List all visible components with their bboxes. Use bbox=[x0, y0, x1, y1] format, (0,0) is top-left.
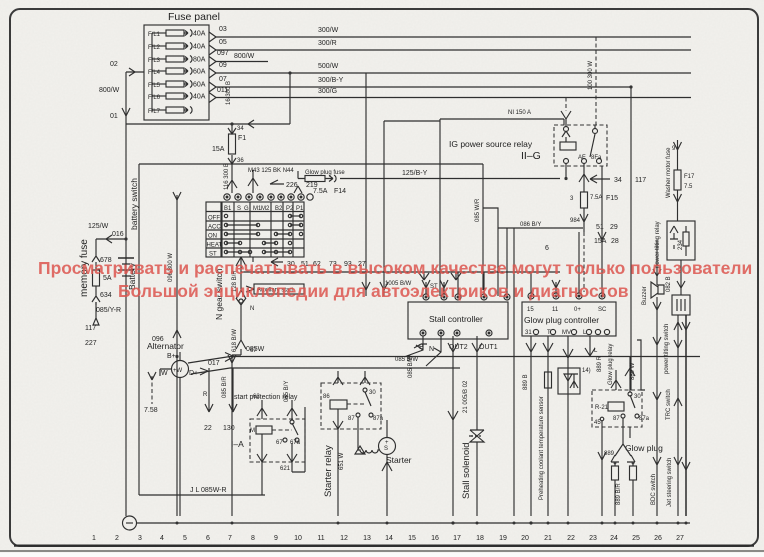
svg-text:800/W: 800/W bbox=[234, 53, 255, 60]
svg-text:889 B: 889 B bbox=[523, 374, 529, 390]
svg-text:15A: 15A bbox=[594, 238, 607, 245]
svg-text:TRC switch: TRC switch bbox=[666, 389, 672, 420]
svg-text:51: 51 bbox=[596, 224, 604, 231]
svg-text:15A: 15A bbox=[212, 146, 225, 153]
svg-text:R: R bbox=[203, 392, 208, 398]
svg-text:AF: AF bbox=[578, 155, 586, 161]
svg-text:29: 29 bbox=[610, 224, 618, 231]
svg-text:117: 117 bbox=[85, 325, 96, 332]
svg-text:5: 5 bbox=[183, 535, 187, 542]
svg-text:22: 22 bbox=[567, 535, 575, 542]
svg-text:battery switch: battery switch bbox=[129, 178, 139, 230]
svg-text:125/B-Y: 125/B-Y bbox=[402, 170, 428, 177]
svg-text:02: 02 bbox=[110, 61, 118, 68]
svg-text:BDC switch: BDC switch bbox=[651, 474, 657, 505]
svg-text:M: M bbox=[250, 428, 255, 434]
svg-text:45: 45 bbox=[594, 420, 601, 426]
svg-text:651 W: 651 W bbox=[339, 452, 345, 470]
svg-text:30: 30 bbox=[369, 390, 376, 396]
svg-text:13: 13 bbox=[363, 535, 371, 542]
svg-text:085 W/R: 085 W/R bbox=[475, 198, 481, 222]
svg-text:25: 25 bbox=[632, 535, 640, 542]
svg-text:618 B/W: 618 B/W bbox=[232, 329, 238, 352]
svg-text:87: 87 bbox=[348, 416, 355, 422]
svg-text:67: 67 bbox=[276, 440, 283, 446]
svg-text:226: 226 bbox=[286, 182, 298, 189]
svg-text:11: 11 bbox=[317, 535, 324, 542]
svg-text:F17: F17 bbox=[684, 174, 695, 180]
svg-text:Stall solenoid: Stall solenoid bbox=[461, 442, 472, 499]
svg-text:889 B/R: 889 B/R bbox=[616, 483, 622, 505]
svg-text:20: 20 bbox=[521, 535, 529, 542]
svg-text:SC: SC bbox=[598, 307, 607, 313]
svg-text:116 300 B: 116 300 B bbox=[224, 163, 230, 190]
svg-text:24: 24 bbox=[610, 535, 618, 542]
svg-text:17: 17 bbox=[453, 535, 461, 542]
svg-text:34: 34 bbox=[237, 126, 244, 132]
svg-text:87: 87 bbox=[613, 416, 620, 422]
svg-text:634: 634 bbox=[100, 292, 112, 299]
svg-text:I–A: I–A bbox=[231, 439, 244, 449]
svg-text:Jet steering switch: Jet steering switch bbox=[667, 458, 673, 507]
svg-text:Starter: Starter bbox=[386, 455, 412, 465]
svg-text:ST: ST bbox=[209, 252, 217, 258]
svg-text:Alternator: Alternator bbox=[147, 341, 184, 351]
svg-text:19: 19 bbox=[499, 535, 507, 542]
svg-text:300/G: 300/G bbox=[318, 88, 337, 95]
svg-text:15: 15 bbox=[408, 535, 416, 542]
svg-text:4: 4 bbox=[160, 535, 164, 542]
svg-text:S: S bbox=[384, 446, 388, 452]
svg-text:085 B/R: 085 B/R bbox=[222, 376, 228, 398]
svg-text:130: 130 bbox=[223, 425, 235, 432]
svg-text:984: 984 bbox=[570, 218, 581, 224]
svg-text:8Fa: 8Fa bbox=[591, 155, 602, 161]
svg-text:097: 097 bbox=[217, 50, 229, 57]
svg-text:03: 03 bbox=[219, 26, 227, 33]
svg-text:Glow plug controller: Glow plug controller bbox=[524, 315, 599, 325]
svg-text:60A: 60A bbox=[193, 82, 206, 89]
svg-text:40A: 40A bbox=[193, 44, 206, 51]
svg-text:Preheating coolant temperature: Preheating coolant temperature sensor bbox=[539, 396, 545, 500]
svg-text:Glow plug relay: Glow plug relay bbox=[608, 344, 614, 385]
svg-text:Большой энциклопедии для автоэ: Большой энциклопедии для автоэлектриков … bbox=[118, 281, 629, 301]
svg-text:500/W: 500/W bbox=[318, 63, 339, 70]
svg-text:OUT1: OUT1 bbox=[479, 344, 498, 351]
svg-text:7.58: 7.58 bbox=[144, 407, 158, 414]
svg-text:M43 125 BK N44: M43 125 BK N44 bbox=[248, 168, 294, 174]
svg-text:21 005/B 02: 21 005/B 02 bbox=[463, 380, 469, 413]
svg-text:34: 34 bbox=[614, 177, 622, 184]
svg-text:Starter relay: Starter relay bbox=[323, 445, 334, 497]
svg-text:889 W: 889 W bbox=[630, 362, 636, 380]
svg-text:87a: 87a bbox=[373, 416, 384, 422]
svg-text:016: 016 bbox=[112, 231, 124, 238]
svg-text:0+: 0+ bbox=[574, 307, 581, 313]
svg-text:R-21: R-21 bbox=[595, 405, 609, 411]
svg-text:31: 31 bbox=[525, 330, 532, 336]
svg-text:26: 26 bbox=[654, 535, 662, 542]
svg-text:234: 234 bbox=[678, 239, 684, 250]
svg-text:86: 86 bbox=[323, 394, 330, 400]
svg-text:227: 227 bbox=[85, 340, 97, 347]
svg-text:J L 085W-R: J L 085W-R bbox=[190, 487, 227, 494]
svg-text:87a: 87a bbox=[639, 416, 650, 422]
svg-text:8: 8 bbox=[251, 535, 255, 542]
svg-text:+: + bbox=[385, 440, 389, 446]
svg-text:1: 1 bbox=[92, 535, 96, 542]
svg-text:MV: MV bbox=[562, 330, 571, 336]
svg-text:10: 10 bbox=[294, 535, 302, 542]
svg-text:+W: +W bbox=[173, 368, 183, 374]
svg-text:40A: 40A bbox=[193, 94, 206, 101]
svg-text:21: 21 bbox=[544, 535, 552, 542]
svg-text:300/R: 300/R bbox=[318, 40, 337, 47]
svg-text:Stall controller: Stall controller bbox=[429, 314, 483, 324]
svg-text:B+: B+ bbox=[167, 353, 176, 360]
svg-text:N: N bbox=[250, 306, 254, 312]
svg-text:800/W: 800/W bbox=[99, 87, 120, 94]
svg-text:3: 3 bbox=[138, 535, 142, 542]
svg-text:12: 12 bbox=[340, 535, 348, 542]
svg-text:01: 01 bbox=[110, 113, 118, 120]
svg-text:40A: 40A bbox=[193, 31, 206, 38]
svg-text:6: 6 bbox=[545, 245, 549, 252]
svg-text:14: 14 bbox=[385, 535, 393, 542]
svg-text:017: 017 bbox=[208, 360, 220, 367]
svg-text:7.5A: 7.5A bbox=[313, 188, 328, 195]
svg-text:300/W: 300/W bbox=[318, 27, 339, 34]
svg-text:621: 621 bbox=[280, 466, 291, 472]
svg-text:Washer motor fuse: Washer motor fuse bbox=[666, 147, 672, 198]
svg-text:W: W bbox=[161, 370, 168, 377]
svg-text:F14: F14 bbox=[334, 188, 346, 195]
svg-text:16: 16 bbox=[431, 535, 439, 542]
svg-text:7.5: 7.5 bbox=[684, 184, 693, 190]
svg-text:7: 7 bbox=[228, 535, 232, 542]
svg-text:125/W: 125/W bbox=[88, 223, 109, 230]
svg-text:100 300 W: 100 300 W bbox=[588, 61, 594, 90]
svg-text:2: 2 bbox=[115, 535, 119, 542]
svg-text:11: 11 bbox=[552, 307, 559, 313]
svg-text:16 300 B: 16 300 B bbox=[226, 81, 232, 105]
svg-text:7.5A: 7.5A bbox=[590, 195, 602, 201]
svg-text:30: 30 bbox=[634, 394, 641, 400]
svg-text:F15: F15 bbox=[606, 195, 618, 202]
svg-text:67: 67 bbox=[250, 348, 257, 354]
svg-text:F1: F1 bbox=[238, 135, 246, 142]
svg-text:05: 05 bbox=[219, 39, 227, 46]
svg-text:36: 36 bbox=[237, 158, 244, 164]
svg-text:power tilting switch: power tilting switch bbox=[664, 324, 670, 374]
svg-text:889: 889 bbox=[604, 451, 615, 457]
svg-text:NI 150 A: NI 150 A bbox=[508, 110, 531, 116]
svg-text:28: 28 bbox=[611, 238, 619, 245]
svg-text:117: 117 bbox=[635, 177, 646, 184]
svg-text:300/B-Y: 300/B-Y bbox=[318, 77, 344, 84]
svg-text:6: 6 bbox=[206, 535, 210, 542]
svg-text:Просматривать и распечатывать: Просматривать и распечатывать в высоком … bbox=[38, 258, 752, 278]
svg-text:085/Y-R: 085/Y-R bbox=[96, 307, 121, 314]
svg-text:085 B/W: 085 B/W bbox=[395, 357, 418, 363]
svg-text:082 B: 082 B bbox=[666, 276, 672, 292]
svg-text:62: 62 bbox=[253, 394, 260, 400]
svg-text:22: 22 bbox=[204, 425, 212, 432]
svg-text:23: 23 bbox=[589, 535, 597, 542]
svg-text:889 R: 889 R bbox=[597, 355, 603, 372]
svg-text:14): 14) bbox=[582, 368, 591, 374]
svg-text:Buzzer: Buzzer bbox=[642, 286, 648, 305]
svg-text:60A: 60A bbox=[193, 69, 206, 76]
svg-text:09: 09 bbox=[219, 62, 227, 69]
svg-text:Fuse panel: Fuse panel bbox=[168, 11, 220, 23]
svg-text:II–G: II–G bbox=[521, 150, 541, 162]
svg-text:N: N bbox=[429, 346, 434, 353]
svg-text:80A: 80A bbox=[193, 57, 206, 64]
svg-text:15: 15 bbox=[527, 307, 534, 313]
svg-text:085 B/Y: 085 B/Y bbox=[284, 381, 290, 402]
svg-text:086 B/Y: 086 B/Y bbox=[520, 222, 541, 228]
svg-text:27: 27 bbox=[676, 535, 684, 542]
svg-text:9: 9 bbox=[274, 535, 278, 542]
svg-text:085 B/W: 085 B/W bbox=[408, 355, 414, 378]
svg-text:18: 18 bbox=[476, 535, 484, 542]
svg-text:IG power source relay: IG power source relay bbox=[449, 139, 533, 149]
